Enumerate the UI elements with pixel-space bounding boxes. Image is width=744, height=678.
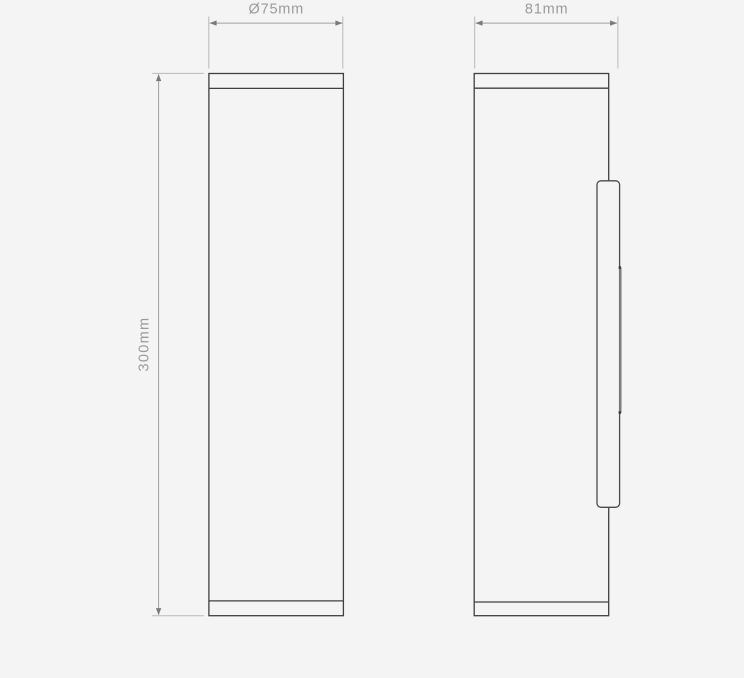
svg-text:300mm: 300mm <box>137 317 153 372</box>
svg-text:Ø75mm: Ø75mm <box>249 2 305 18</box>
svg-text:81mm: 81mm <box>525 2 569 18</box>
